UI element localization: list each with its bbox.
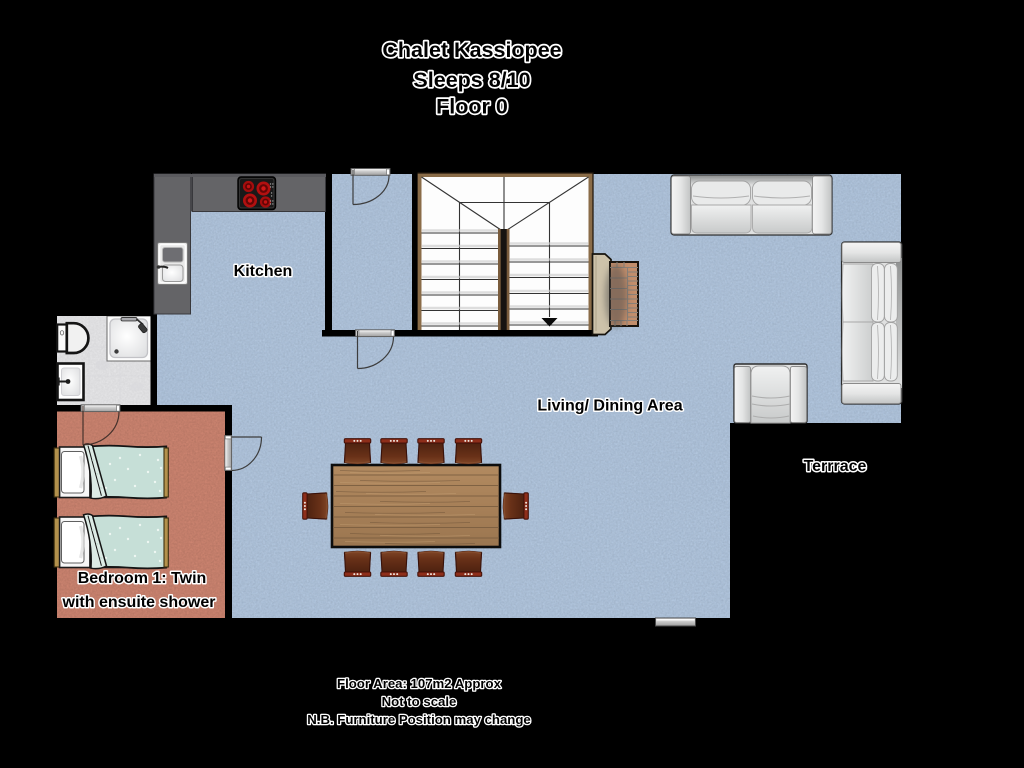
svg-text:with ensuite shower: with ensuite shower [62, 594, 216, 611]
svg-text:Living/ Dining Area: Living/ Dining Area [537, 398, 682, 415]
svg-text:Sleeps 8/10: Sleeps 8/10 [413, 68, 530, 92]
svg-text:Bedroom 1: Twin: Bedroom 1: Twin [78, 570, 207, 587]
svg-text:Not to scale: Not to scale [382, 694, 457, 709]
svg-text:Floor 0: Floor 0 [436, 95, 508, 119]
svg-text:Chalet Kassiopee: Chalet Kassiopee [382, 38, 561, 62]
svg-text:Floor Area: 107m2 Approx: Floor Area: 107m2 Approx [337, 676, 502, 691]
svg-text:Terrrace: Terrrace [804, 458, 867, 475]
svg-text:N.B. Furniture Position may ch: N.B. Furniture Position may change [307, 712, 531, 727]
svg-text:Kitchen: Kitchen [234, 263, 293, 280]
